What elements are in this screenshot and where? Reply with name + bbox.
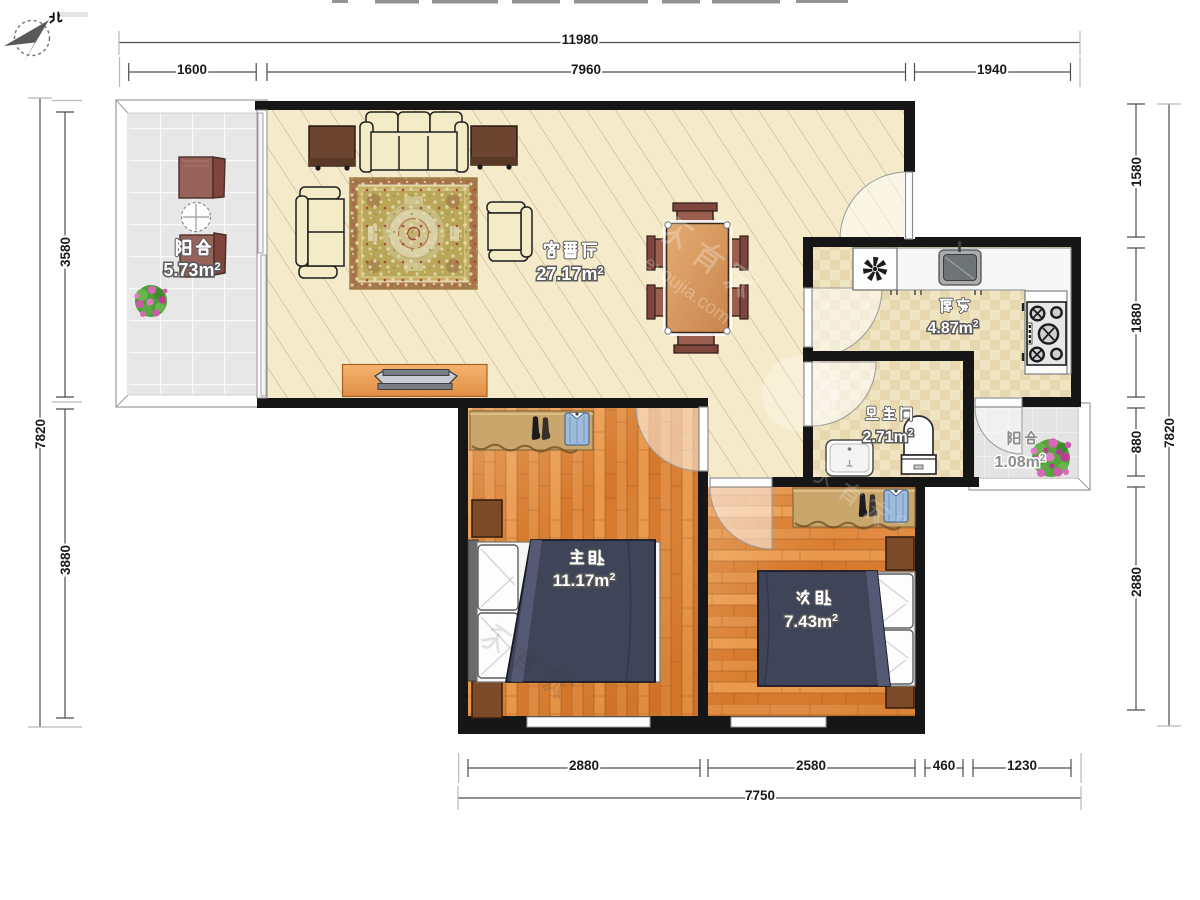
svg-text:11.17m2: 11.17m2: [553, 571, 616, 590]
svg-text:5.73m2: 5.73m2: [163, 260, 220, 280]
svg-text:880: 880: [1129, 431, 1144, 454]
svg-text:460: 460: [933, 758, 956, 773]
svg-text:1.08m2: 1.08m2: [995, 453, 1046, 471]
svg-text:7820: 7820: [33, 419, 48, 449]
svg-text:2880: 2880: [569, 758, 599, 773]
svg-text:11980: 11980: [562, 32, 599, 47]
svg-text:1940: 1940: [977, 62, 1007, 77]
svg-text:27.17m2: 27.17m2: [536, 264, 603, 284]
svg-text:2.71m2: 2.71m2: [863, 428, 914, 446]
svg-text:7820: 7820: [1162, 418, 1177, 448]
svg-text:3580: 3580: [58, 237, 73, 267]
svg-text:2880: 2880: [1129, 567, 1144, 597]
svg-text:2580: 2580: [796, 758, 826, 773]
svg-text:1580: 1580: [1129, 157, 1144, 187]
svg-text:7960: 7960: [571, 62, 601, 77]
svg-text:7.43m2: 7.43m2: [784, 612, 838, 631]
svg-text:1230: 1230: [1007, 758, 1037, 773]
svg-text:1600: 1600: [177, 62, 207, 77]
svg-text:4.87m2: 4.87m2: [928, 319, 979, 337]
svg-text:3880: 3880: [58, 545, 73, 575]
svg-text:7750: 7750: [745, 788, 775, 803]
svg-text:1880: 1880: [1129, 303, 1144, 333]
